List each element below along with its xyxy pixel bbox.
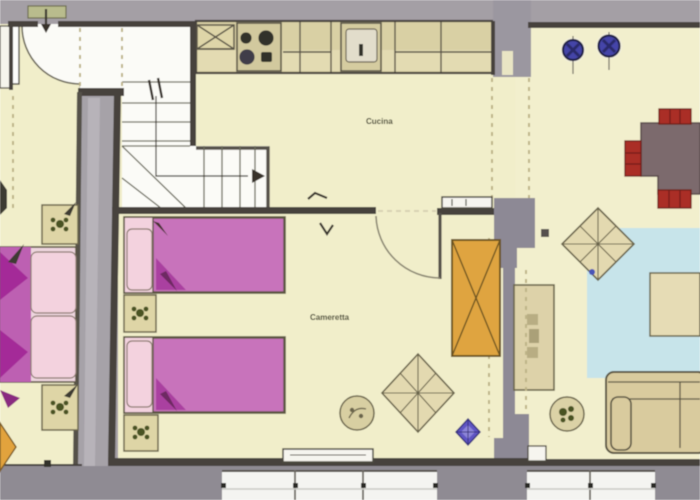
svg-text:Cucina: Cucina [366,117,393,126]
svg-text:Cameretta: Cameretta [310,313,350,322]
